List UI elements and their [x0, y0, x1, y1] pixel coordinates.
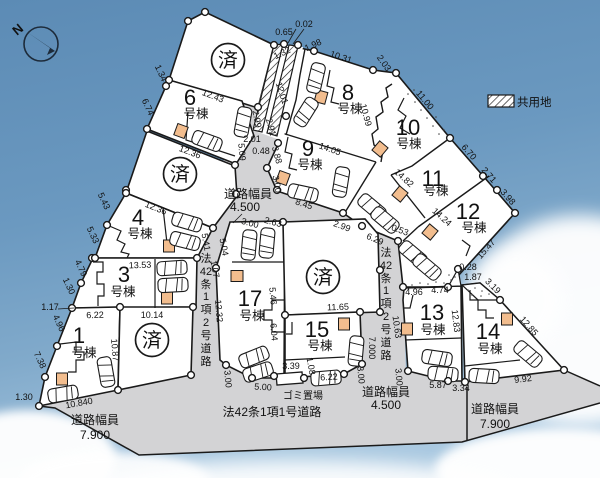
- svg-text:3.34: 3.34: [452, 383, 470, 393]
- svg-text:13: 13: [420, 300, 444, 325]
- svg-text:道: 道: [381, 335, 392, 349]
- svg-text:号棟: 号棟: [239, 308, 265, 323]
- svg-text:道路幅員: 道路幅員: [224, 186, 272, 201]
- svg-text:6.22: 6.22: [86, 310, 104, 321]
- svg-text:法42条1項1号道路: 法42条1項1号道路: [223, 404, 322, 419]
- svg-text:4.74: 4.74: [431, 285, 449, 295]
- svg-text:0.02: 0.02: [295, 19, 313, 29]
- svg-text:号棟: 号棟: [461, 220, 487, 235]
- svg-text:済: 済: [218, 49, 238, 72]
- svg-text:6.04: 6.04: [268, 323, 279, 341]
- svg-text:1.87: 1.87: [464, 272, 482, 282]
- svg-text:済: 済: [170, 163, 190, 186]
- svg-text:11.65: 11.65: [327, 302, 349, 313]
- svg-text:10.87: 10.87: [109, 338, 121, 361]
- svg-text:済: 済: [313, 266, 333, 289]
- svg-text:1: 1: [203, 291, 209, 303]
- svg-text:1.17: 1.17: [41, 302, 59, 312]
- svg-text:7.900: 7.900: [480, 417, 510, 431]
- svg-text:9.92: 9.92: [514, 373, 533, 385]
- svg-text:1.30: 1.30: [15, 392, 33, 402]
- svg-text:7.900: 7.900: [80, 428, 110, 442]
- svg-text:号棟: 号棟: [420, 322, 446, 337]
- svg-text:1: 1: [383, 285, 389, 297]
- svg-text:2: 2: [383, 311, 389, 323]
- svg-text:号棟: 号棟: [423, 183, 449, 198]
- svg-text:道路幅員: 道路幅員: [362, 384, 410, 399]
- svg-text:路: 路: [201, 355, 212, 368]
- svg-text:法: 法: [381, 245, 392, 259]
- svg-text:号棟: 号棟: [183, 106, 209, 121]
- svg-text:号: 号: [381, 323, 392, 336]
- svg-text:7.000: 7.000: [367, 337, 377, 360]
- svg-text:0.65: 0.65: [275, 27, 293, 37]
- svg-text:1: 1: [73, 323, 85, 348]
- svg-text:条: 条: [201, 277, 212, 291]
- svg-text:済: 済: [142, 329, 162, 352]
- svg-text:2: 2: [203, 317, 209, 329]
- svg-text:道路幅員: 道路幅員: [471, 401, 519, 416]
- svg-text:共用地: 共用地: [517, 96, 552, 109]
- svg-text:3.00: 3.00: [222, 370, 233, 388]
- svg-text:6.22: 6.22: [320, 372, 338, 383]
- svg-text:4.96: 4.96: [405, 287, 423, 297]
- svg-text:道: 道: [201, 341, 212, 355]
- svg-text:号棟: 号棟: [110, 284, 136, 299]
- svg-text:13.53: 13.53: [129, 260, 152, 271]
- svg-text:17: 17: [238, 286, 262, 311]
- svg-text:号棟: 号棟: [307, 338, 333, 353]
- svg-text:3.00: 3.00: [393, 368, 404, 386]
- svg-text:号棟: 号棟: [297, 157, 323, 172]
- svg-text:道路幅員: 道路幅員: [71, 412, 119, 427]
- svg-text:号: 号: [201, 329, 212, 342]
- svg-text:3.39: 3.39: [282, 361, 300, 371]
- svg-text:0.28: 0.28: [459, 262, 477, 272]
- svg-text:0.48: 0.48: [252, 146, 270, 156]
- svg-text:号棟: 号棟: [71, 345, 97, 360]
- svg-text:4.500: 4.500: [371, 398, 401, 412]
- svg-text:14: 14: [476, 319, 500, 344]
- svg-text:12.32: 12.32: [213, 299, 225, 322]
- svg-text:条: 条: [381, 271, 392, 285]
- svg-text:号棟: 号棟: [477, 341, 503, 356]
- svg-text:4.500: 4.500: [230, 200, 260, 214]
- svg-text:号棟: 号棟: [396, 136, 422, 151]
- svg-text:5.87: 5.87: [429, 380, 447, 390]
- svg-text:路: 路: [381, 349, 392, 362]
- svg-text:項: 項: [201, 303, 212, 316]
- svg-text:42: 42: [380, 260, 392, 272]
- svg-text:項: 項: [381, 297, 392, 310]
- svg-text:5.46: 5.46: [267, 287, 278, 305]
- svg-text:3.00: 3.00: [355, 366, 366, 384]
- svg-text:5.09: 5.09: [236, 143, 247, 161]
- svg-text:10.14: 10.14: [141, 310, 164, 320]
- svg-text:5.00: 5.00: [254, 382, 272, 393]
- svg-text:ゴミ置場: ゴミ置場: [283, 389, 323, 402]
- svg-text:号棟: 号棟: [127, 226, 153, 241]
